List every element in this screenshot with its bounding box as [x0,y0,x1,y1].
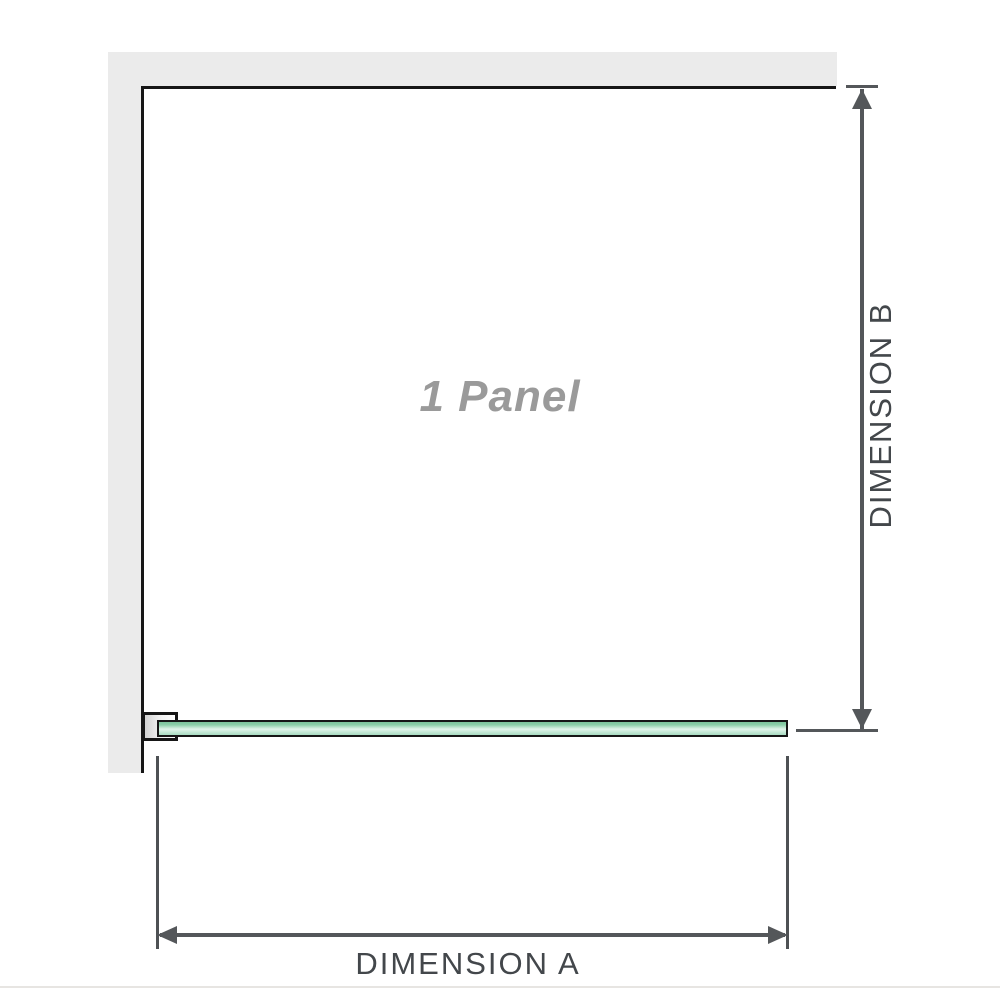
arrow-up-icon [852,89,872,109]
arrow-left-icon [157,926,177,944]
dimension-b-bottom-tick [796,729,878,732]
dimension-b-top-tick [846,85,878,88]
panel-count-label: 1 Panel [300,370,700,424]
image-bottom-divider [0,986,1000,988]
dimension-a-right-extension-line [786,756,789,949]
enclosure-top-edge [141,86,836,89]
dimension-b-label: DIMENSION B [861,265,901,565]
arrow-right-icon [768,926,788,944]
glass-panel [157,720,788,737]
arrow-down-icon [852,709,872,729]
wall-left [108,52,141,773]
diagram-canvas: 1 Panel DIMENSION B DIMENSION A [0,0,1000,1000]
dimension-a-line [160,933,785,937]
dimension-a-left-extension-line [156,756,159,949]
enclosure-left-edge [141,86,144,773]
wall-top [108,52,837,86]
dimension-a-label: DIMENSION A [318,946,618,982]
